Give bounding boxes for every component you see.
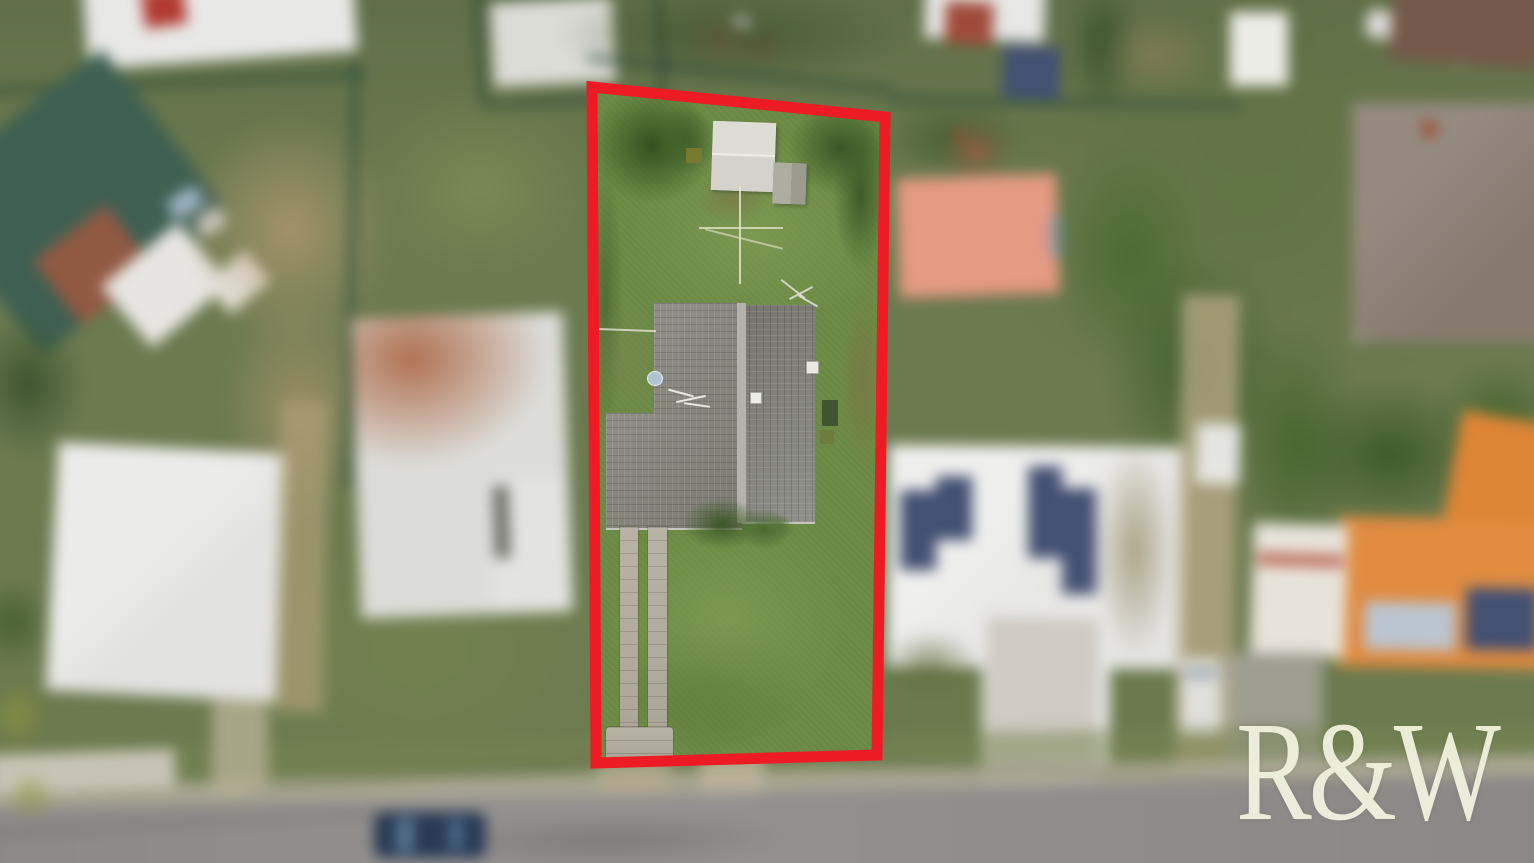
warehouse-dark-strip <box>493 486 511 558</box>
parked-car-blue <box>374 812 486 858</box>
solar-panel-array <box>1028 466 1062 558</box>
roof-vent <box>750 392 762 404</box>
tree-canopy <box>0 580 50 665</box>
garden-strip <box>1095 440 1175 660</box>
side-hedge <box>833 120 888 270</box>
white-shed-roof <box>1230 12 1288 86</box>
satellite-dish <box>647 371 663 386</box>
path-continuation <box>598 760 670 796</box>
driveway-strip <box>648 527 667 740</box>
ground-solar-array <box>1001 45 1061 99</box>
shed-ridge <box>712 153 775 157</box>
van-windshield <box>1184 668 1218 678</box>
car-rear-window <box>448 819 464 851</box>
driveway-strip <box>620 527 638 740</box>
neighbor-roof-brown <box>1389 0 1534 70</box>
brand-watermark: R&W <box>1236 700 1476 842</box>
solar-panel-array <box>1465 587 1534 650</box>
roof-ridge-cap <box>737 303 746 523</box>
garden-structure <box>822 400 838 426</box>
neighbor-house-roof-white <box>46 442 289 702</box>
red-stripe <box>1257 553 1343 568</box>
clothesline-pole <box>739 186 741 284</box>
dirt-yard <box>1090 15 1220 95</box>
clothesline-items-blue <box>1050 215 1060 257</box>
gravel-path <box>275 402 328 713</box>
roof-vent <box>806 361 819 374</box>
grass-light-patch <box>370 85 590 285</box>
driveway-crossing <box>212 700 268 795</box>
neighbor-roof-white-small <box>1195 423 1241 484</box>
flower-bush-yellow <box>8 772 54 818</box>
backyard-shed <box>711 121 776 192</box>
chimney <box>1422 122 1436 136</box>
clothesline-wire <box>699 227 783 229</box>
car-windshield <box>396 818 414 852</box>
flower-bush-yellow <box>0 680 48 750</box>
solar-panel-array <box>936 476 972 540</box>
garden-box <box>686 148 702 163</box>
solar-panel-array <box>1062 488 1096 594</box>
neighbor-roof-salmon <box>896 173 1060 299</box>
aerial-photo: R&W <box>0 0 1534 863</box>
white-van <box>1180 658 1222 736</box>
solar-panel-array <box>900 490 936 570</box>
red-flower-patch <box>972 148 980 156</box>
solar-panel-array-light <box>1364 601 1457 651</box>
driveway-apron <box>606 727 673 758</box>
neighbor-hip-roof <box>1352 102 1534 342</box>
garden-shed <box>772 162 806 204</box>
red-flower-patch <box>955 130 964 139</box>
neighbor-building-cream <box>1250 522 1349 657</box>
backyard-shrubs <box>655 105 715 175</box>
front-shrub <box>764 514 794 540</box>
neighbor-roof-redbrown <box>944 1 994 45</box>
garden-strip <box>880 630 980 700</box>
house-roof-right-section <box>742 305 815 524</box>
dry-grass-patch <box>840 290 885 470</box>
worn-grass <box>595 295 660 425</box>
garden-structure <box>820 430 834 444</box>
tree-canopy <box>0 312 85 457</box>
